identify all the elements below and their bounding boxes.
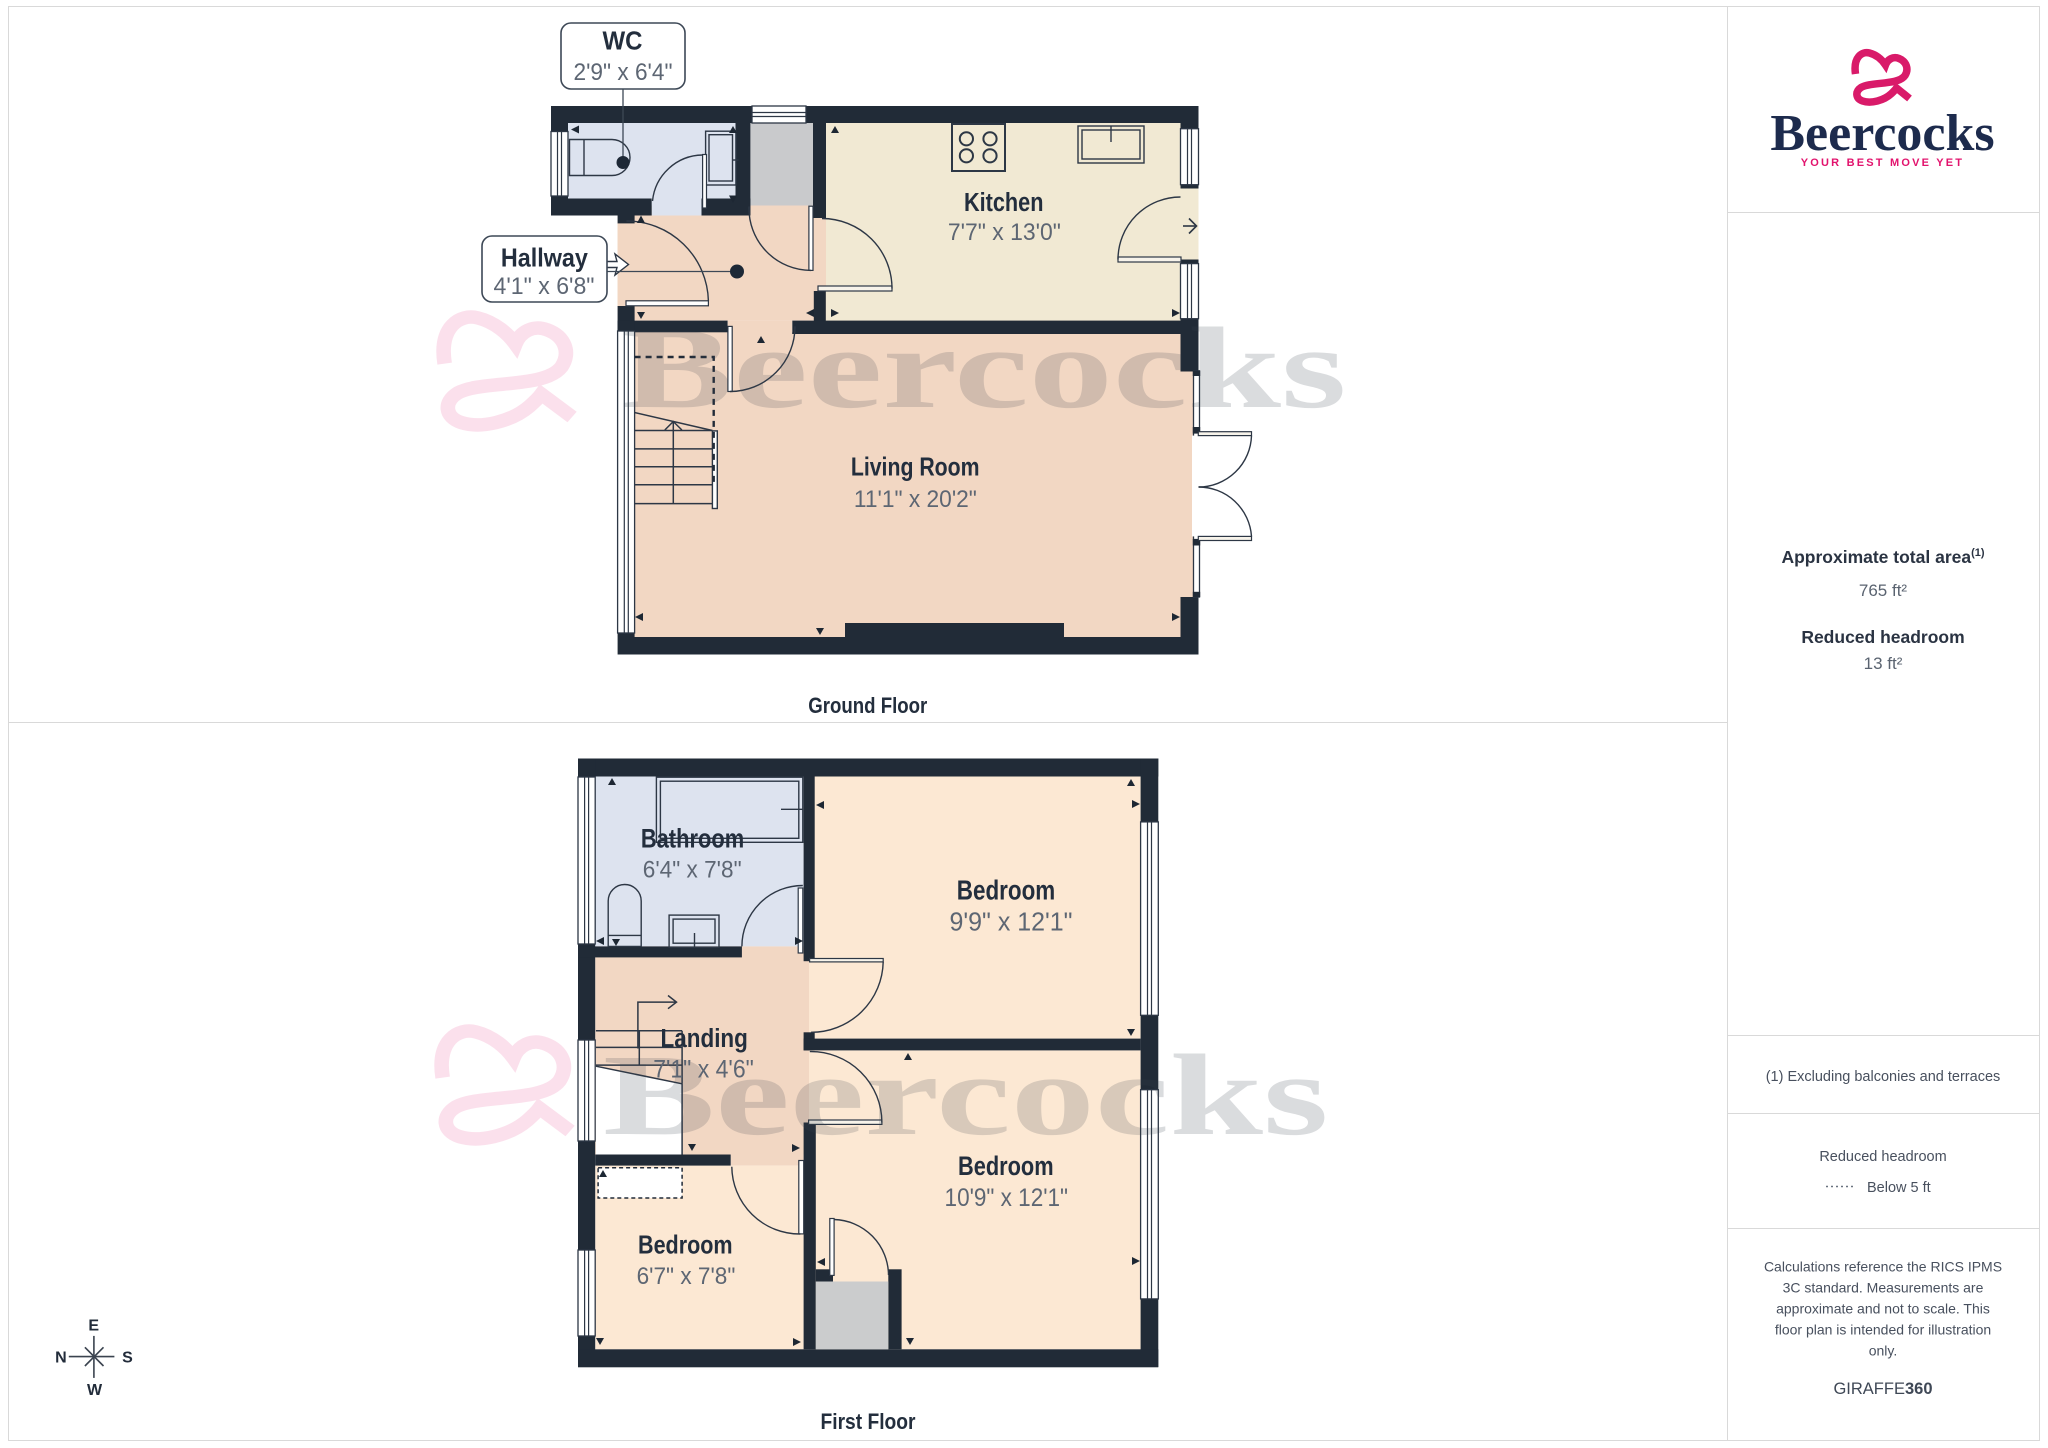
svg-text:S: S (122, 1349, 133, 1366)
svg-text:Hallway: Hallway (501, 243, 588, 273)
svg-text:Bedroom: Bedroom (638, 1230, 733, 1260)
svg-text:Below 5 ft: Below 5 ft (1867, 1180, 1931, 1196)
svg-text:11'1" x 20'2": 11'1" x 20'2" (854, 486, 977, 513)
svg-text:Ground Floor: Ground Floor (808, 693, 927, 718)
svg-text:Bedroom: Bedroom (957, 875, 1055, 906)
svg-text:First Floor: First Floor (821, 1409, 916, 1434)
svg-text:6'4" x 7'8": 6'4" x 7'8" (643, 857, 742, 884)
svg-text:Beercocks: Beercocks (1770, 105, 1994, 162)
svg-text:Bathroom: Bathroom (641, 824, 744, 854)
svg-text:Landing: Landing (661, 1025, 748, 1053)
svg-text:7'1" x 4'6": 7'1" x 4'6" (653, 1056, 754, 1084)
svg-text:YOUR BEST MOVE YET: YOUR BEST MOVE YET (1801, 157, 1964, 169)
svg-text:WC: WC (603, 26, 643, 56)
svg-text:N: N (55, 1349, 67, 1366)
svg-text:2'9" x 6'4": 2'9" x 6'4" (574, 59, 673, 86)
svg-text:Reduced headroom: Reduced headroom (1819, 1149, 1946, 1165)
svg-text:E: E (88, 1318, 99, 1335)
svg-text:approximate and not to scale.: approximate and not to scale. This (1776, 1301, 1990, 1317)
svg-text:Reduced headroom: Reduced headroom (1801, 627, 1964, 647)
svg-text:3C standard. Measurements are: 3C standard. Measurements are (1783, 1280, 1984, 1296)
svg-text:only.: only. (1869, 1343, 1898, 1359)
svg-text:4'1" x 6'8": 4'1" x 6'8" (494, 273, 595, 300)
svg-text:(1) Excluding balconies and te: (1) Excluding balconies and terraces (1766, 1069, 2001, 1085)
svg-text:765 ft²: 765 ft² (1859, 581, 1908, 600)
svg-text:Beercocks: Beercocks (621, 304, 1346, 432)
svg-text:floor plan is intended for ill: floor plan is intended for illustration (1775, 1322, 1991, 1338)
svg-text:7'7" x 13'0": 7'7" x 13'0" (948, 219, 1061, 246)
svg-text:GIRAFFE360: GIRAFFE360 (1833, 1380, 1932, 1398)
svg-text:9'9" x 12'1": 9'9" x 12'1" (950, 909, 1073, 937)
svg-text:Living Room: Living Room (851, 452, 980, 482)
svg-text:6'7" x 7'8": 6'7" x 7'8" (637, 1263, 736, 1290)
svg-text:Kitchen: Kitchen (964, 189, 1044, 217)
svg-text:Bedroom: Bedroom (958, 1151, 1054, 1181)
svg-text:Approximate total area(1): Approximate total area(1) (1781, 547, 1984, 567)
svg-text:W: W (87, 1382, 103, 1399)
svg-text:10'9" x 12'1": 10'9" x 12'1" (945, 1184, 1069, 1212)
svg-text:13 ft²: 13 ft² (1864, 654, 1903, 673)
svg-text:Calculations reference the RIC: Calculations reference the RICS IPMS (1764, 1259, 2002, 1275)
